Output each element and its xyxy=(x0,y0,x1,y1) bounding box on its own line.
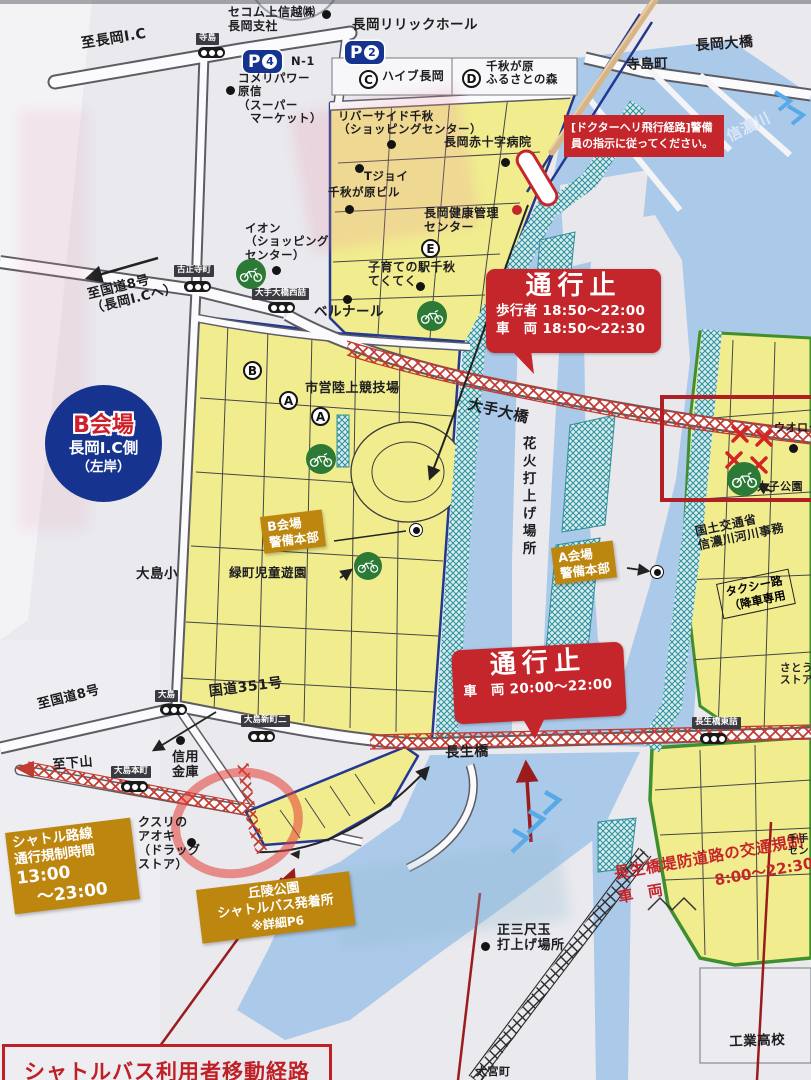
parking-c-name: ハイブ長岡 xyxy=(382,70,444,84)
place-ion: イオン（ショッピングセンター） xyxy=(245,222,329,262)
signal-tag-oshima: 大島 xyxy=(155,690,178,702)
location-dot-icon xyxy=(187,838,196,847)
traffic-signal-icon xyxy=(184,281,211,292)
place-senshu-building: 千秋が原ビル xyxy=(328,186,400,199)
parking-p4-badge: P4 xyxy=(243,50,282,73)
bicycle-parking-icon xyxy=(306,444,336,474)
location-dot-icon xyxy=(343,295,352,304)
place-bernard: ベルナール xyxy=(314,305,384,321)
bicycle-parking-icon xyxy=(354,552,382,580)
venue-b-badge: B会場 長岡I.C側 （左岸） xyxy=(45,385,162,502)
closure-notice-chosei: 通行止 車 両 20:00～22:00 xyxy=(451,642,627,725)
location-dot-icon xyxy=(355,164,364,173)
signal-tag-otebashi-west: 大手大橋西詰 xyxy=(252,288,309,300)
place-taishi-park: 太子公園 xyxy=(757,481,803,494)
location-dot-icon xyxy=(176,736,185,745)
place-kosodate: 子育ての駅千秋てくてく xyxy=(368,261,456,289)
place-senju: 千手セン xyxy=(788,834,809,857)
parking-area-marker-c: C xyxy=(359,70,378,89)
parking-area-marker-a: A xyxy=(279,391,298,410)
signal-tag-chosei-east: 長生橋東詰 xyxy=(692,717,741,729)
traffic-signal-icon xyxy=(160,704,187,715)
place-kogyo-highschool: 工業高校 xyxy=(729,1033,786,1051)
place-tjoy: Tジョイ xyxy=(364,170,408,183)
base-map xyxy=(0,0,811,1080)
bridge-chosei: 長生橋 xyxy=(445,743,489,761)
place-midori-park: 緑町児童遊園 xyxy=(229,566,307,581)
traffic-signal-icon xyxy=(121,781,148,792)
shuttle-route-footer-notice: シャトルバス利用者移動経路 xyxy=(2,1044,332,1080)
place-seisanjakudama-launch: 正三尺玉打上げ場所 xyxy=(497,923,565,953)
signal-tag-oshima-shin2: 大島新町二 xyxy=(241,715,290,727)
parking-p4-code: N-1 xyxy=(291,55,315,68)
bicycle-parking-icon xyxy=(727,462,761,496)
parking-area-marker-e: E xyxy=(421,239,440,258)
traffic-signal-icon xyxy=(268,302,295,313)
place-riverside: リバーサイド千秋（ショッピングセンター） xyxy=(338,110,482,137)
hq-a-venue: A会場警備本部 xyxy=(551,540,617,585)
location-dot-icon xyxy=(481,942,490,951)
place-uoroku: ウオロク xyxy=(774,422,811,435)
place-kenko-center: 長岡健康管理センター xyxy=(424,207,499,235)
traffic-signal-icon xyxy=(248,731,275,742)
heli-route-notice: [ドクターヘリ飛行経路]警備員の指示に従ってください。 xyxy=(564,115,724,157)
location-dot-icon xyxy=(322,10,331,19)
location-dot-icon xyxy=(387,140,396,149)
district-terashima-cho: 寺島町 xyxy=(626,57,669,74)
place-oshima-elementary: 大島小 xyxy=(136,567,178,583)
place-sato-store: さとうストア xyxy=(780,662,811,686)
hq-b-venue: B会場警備本部 xyxy=(260,509,326,554)
fireworks-launch-site-label: 花火打上げ場所 xyxy=(519,436,535,631)
location-dot-icon xyxy=(272,266,281,275)
shuttle-regulation-notice: シャトル路線 通行規制時間 13:00 ～23:00 xyxy=(5,818,140,915)
hq-a-location-dot-icon xyxy=(650,565,664,579)
place-redcross-hospital: 長岡赤十字病院 xyxy=(444,136,532,150)
closure-notice-ote: 通行止 歩行者 18:50～22:00 車 両 18:50～22:30 xyxy=(486,269,661,353)
parking-p2-badge: P2 xyxy=(345,41,384,64)
location-dot-icon xyxy=(501,158,510,167)
location-dot-icon xyxy=(416,282,425,291)
parking-d-name: 千秋が原ふるさとの森 xyxy=(486,60,558,87)
parking-area-marker-d: D xyxy=(462,69,481,88)
district-omiya-cho: 大宮町 xyxy=(476,1066,511,1079)
hq-b-location-dot-icon xyxy=(409,523,423,537)
place-shinkin-bank: 信用金庫 xyxy=(172,750,199,780)
traffic-signal-icon xyxy=(198,47,225,58)
signal-tag-terashima: 寺島 xyxy=(196,33,219,45)
location-dot-icon xyxy=(345,205,354,214)
location-dot-icon xyxy=(226,86,235,95)
place-komeri: コメリパワー原信（スーパー マーケット） xyxy=(238,72,322,125)
place-stadium: 市営陸上競技場 xyxy=(305,381,400,396)
parking-area-marker-b: B xyxy=(243,361,262,380)
regulation-map-page: セコム上信越㈱長岡支社 長岡リリックホール 至長岡I.C 寺島 P4 N-1 P… xyxy=(0,0,811,1080)
traffic-signal-icon xyxy=(700,733,727,744)
place-lyric-hall: 長岡リリックホール xyxy=(352,18,478,34)
location-dot-icon xyxy=(789,444,798,453)
bicycle-parking-icon xyxy=(236,259,266,289)
parking-area-marker-a: A xyxy=(311,407,330,426)
bicycle-parking-icon xyxy=(417,301,447,331)
signal-tag-koshoji: 古正寺町 xyxy=(174,265,214,277)
place-secom: セコム上信越㈱長岡支社 xyxy=(228,6,316,34)
signal-tag-oshima-hon: 大島本町 xyxy=(111,766,151,778)
